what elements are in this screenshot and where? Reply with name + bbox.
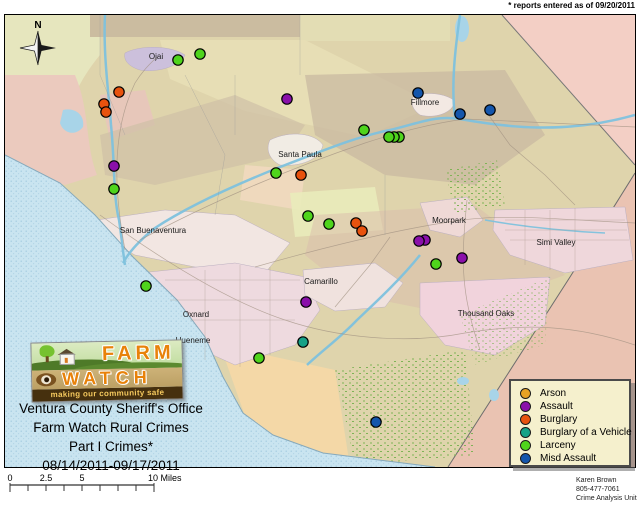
legend-item-assault: Assault (511, 400, 629, 413)
city-label-moorpark: Moorpark (432, 216, 467, 225)
incident-larceny (109, 184, 119, 194)
misd-assault-swatch-icon (520, 453, 531, 464)
incident-assault (109, 161, 119, 171)
burglary-vehicle-swatch-icon (520, 427, 531, 438)
scale-bar: 0 2.5 5 10 Miles (6, 472, 191, 498)
legend-box: Arson Assault Burglary Burglary of a Veh… (509, 379, 631, 467)
assault-swatch-icon (520, 401, 531, 412)
title-line-3: Part I Crimes* (5, 439, 217, 455)
incident-misd_assault (455, 109, 465, 119)
incident-larceny (431, 259, 441, 269)
incident-assault (457, 253, 467, 263)
credit-phone: 805-477-7061 (576, 486, 637, 495)
city-label-camarillo: Camarillo (304, 277, 338, 286)
city-label-ojai: Ojai (149, 52, 163, 61)
incident-burglary_vehicle (298, 337, 308, 347)
eye-icon-pupil (44, 377, 49, 382)
legend-label: Misd Assault (540, 453, 596, 464)
legend-label: Arson (540, 388, 566, 399)
logo-farm-text: FARM (102, 342, 175, 367)
incident-larceny (173, 55, 183, 65)
scale-label-10-miles: 10 Miles (148, 473, 182, 483)
city-label-simi-valley: Simi Valley (537, 238, 576, 247)
incident-misd_assault (413, 88, 423, 98)
incident-larceny (254, 353, 264, 363)
incident-burglary (357, 226, 367, 236)
legend-label: Burglary (540, 414, 577, 425)
page: * reports entered as of 09/20/2011 (0, 0, 640, 505)
incident-larceny (324, 219, 334, 229)
incident-larceny (195, 49, 205, 59)
city-label-fillmore: Fillmore (411, 98, 440, 107)
compass-rose: N (15, 17, 61, 73)
city-label-oxnard: Oxnard (183, 310, 209, 319)
credit-name: Karen Brown (576, 477, 637, 486)
farmwatch-logo-mid: WATCH (32, 367, 182, 389)
incident-misd_assault (485, 105, 495, 115)
incident-larceny (271, 168, 281, 178)
map-frame: OjaiFillmoreSanta PaulaSan BuenaventuraM… (4, 14, 636, 468)
legend-label: Larceny (540, 440, 576, 451)
title-line-1: Ventura County Sheriff's Office (5, 401, 217, 417)
legend-item-burglary-vehicle: Burglary of a Vehicle (511, 426, 629, 439)
farmwatch-logo-top: FARM (31, 340, 182, 370)
incident-assault (414, 236, 424, 246)
incident-larceny (141, 281, 151, 291)
legend-item-misd-assault: Misd Assault (511, 452, 629, 465)
city-label-santa-paula: Santa Paula (278, 150, 322, 159)
farmwatch-logo: FARM WATCH making our community safe (30, 339, 183, 402)
title-line-2: Farm Watch Rural Crimes (5, 420, 217, 436)
legend-item-larceny: Larceny (511, 439, 629, 452)
scale-label-5: 5 (79, 473, 84, 483)
compass-north-label: N (34, 20, 41, 31)
map-title-block: Ventura County Sheriff's Office Farm Wat… (5, 401, 217, 477)
incident-assault (282, 94, 292, 104)
incident-burglary (114, 87, 124, 97)
arson-swatch-icon (520, 388, 531, 399)
credits-block: Karen Brown 805-477-7061 Crime Analysis … (576, 477, 637, 503)
tree-trunk-icon (46, 356, 49, 362)
incident-larceny (303, 211, 313, 221)
credit-unit: Crime Analysis Unit (576, 495, 637, 504)
incident-larceny (384, 132, 394, 142)
city-label-thousand-oaks: Thousand Oaks (458, 309, 514, 318)
incident-misd_assault (371, 417, 381, 427)
larceny-swatch-icon (520, 440, 531, 451)
incident-larceny (359, 125, 369, 135)
house-door-icon (65, 358, 68, 363)
incident-burglary (101, 107, 111, 117)
reports-entered-note: * reports entered as of 09/20/2011 (508, 1, 635, 10)
burglary-swatch-icon (520, 414, 531, 425)
city-label-san-buenaventura: San Buenaventura (120, 226, 187, 235)
legend-label: Burglary of a Vehicle (540, 427, 632, 438)
legend-item-burglary: Burglary (511, 413, 629, 426)
legend-item-arson: Arson (511, 387, 629, 400)
incident-assault (301, 297, 311, 307)
compass-star-highlight (20, 31, 38, 65)
logo-watch-text: WATCH (62, 367, 152, 389)
legend-label: Assault (540, 401, 573, 412)
incident-burglary (296, 170, 306, 180)
scale-label-0: 0 (7, 473, 12, 483)
scale-label-2-5: 2.5 (40, 473, 53, 483)
